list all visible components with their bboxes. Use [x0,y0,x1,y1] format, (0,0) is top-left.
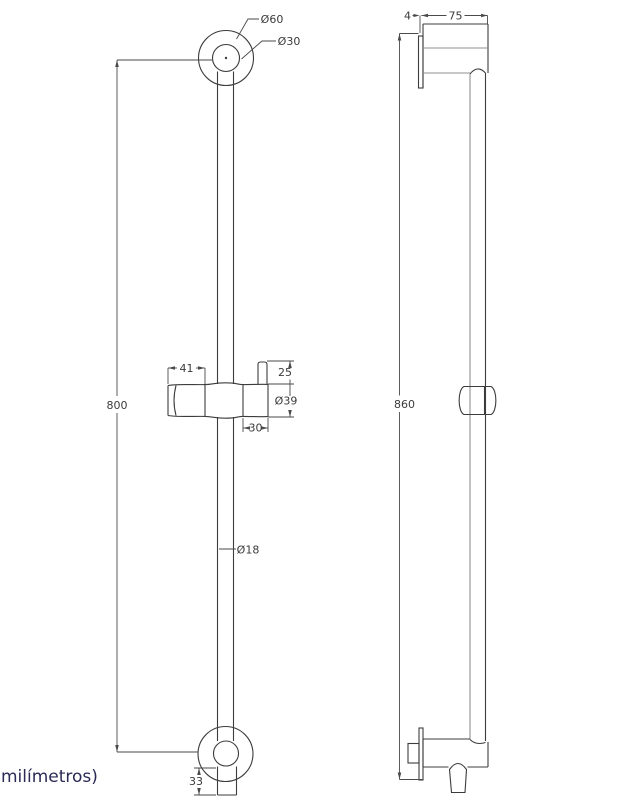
dim-30-label: 30 [249,422,263,435]
technical-drawing-page: 800 Ø60 Ø30 41 [0,0,618,800]
dim-25-label: 25 [278,366,292,379]
dim-860-label: 860 [394,398,415,411]
dim-4: 4 [404,10,420,34]
dim-33: 33 [189,768,216,795]
side-bottom-flange [408,728,488,793]
front-top-flange [199,31,254,86]
side-tube [470,73,486,741]
side-top-flange [419,24,489,88]
dim-800-label: 800 [107,399,128,412]
dim-800: 800 [107,60,213,752]
dim-75: 75 [422,10,488,25]
dim-dia30-label: Ø30 [278,35,301,48]
front-bottom-flange [198,727,253,796]
dim-30: 30 [243,418,268,435]
dim-25-dia39: 25 Ø39 [267,361,297,417]
dim-dia39-label: Ø39 [275,395,298,408]
dim-33-label: 33 [189,775,203,788]
units-note: milímetros) [1,767,98,787]
dim-dia18-label: Ø18 [237,544,260,557]
dim-4-label: 4 [404,10,411,23]
dim-41: 41 [168,362,205,384]
front-tube [218,72,234,742]
side-slider-knob [459,387,496,415]
dim-75-label: 75 [449,10,463,23]
leader-dia60: Ø60 [237,13,284,39]
shower-slide-bar-drawing: 800 Ø60 Ø30 41 [0,0,618,800]
front-view: 800 Ø60 Ø30 41 [107,13,301,795]
dim-41-label: 41 [180,362,194,375]
leader-dia18: Ø18 [219,544,259,557]
dim-dia60-label: Ø60 [261,13,284,26]
dim-860: 860 [394,34,423,780]
leader-dia30: Ø30 [242,35,301,59]
side-view: 4 75 860 [394,10,496,793]
